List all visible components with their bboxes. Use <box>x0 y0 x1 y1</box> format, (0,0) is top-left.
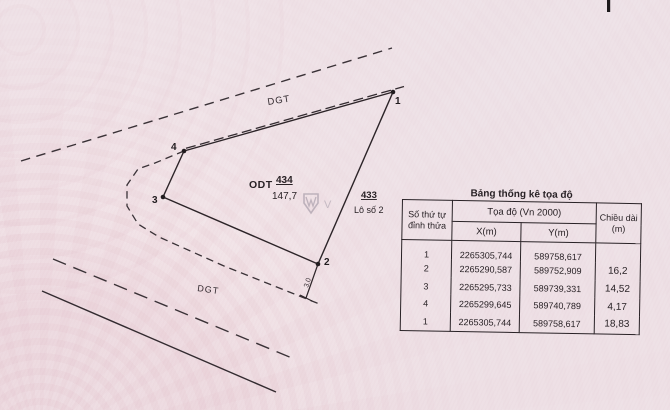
svg-text:434: 434 <box>276 175 293 186</box>
svg-text:Lô số 2: Lô số 2 <box>354 205 384 215</box>
svg-text:1: 1 <box>395 96 401 107</box>
svg-text:4: 4 <box>171 142 177 153</box>
svg-text:V: V <box>324 199 333 211</box>
svg-text:DGT: DGT <box>267 93 291 107</box>
svg-text:433: 433 <box>361 190 377 201</box>
svg-text:3.0: 3.0 <box>303 277 313 289</box>
svg-text:DGT: DGT <box>197 283 220 296</box>
svg-text:2: 2 <box>324 257 330 268</box>
svg-text:3: 3 <box>152 195 158 206</box>
svg-text:ODT: ODT <box>249 179 273 191</box>
svg-text:147,7: 147,7 <box>272 191 297 202</box>
